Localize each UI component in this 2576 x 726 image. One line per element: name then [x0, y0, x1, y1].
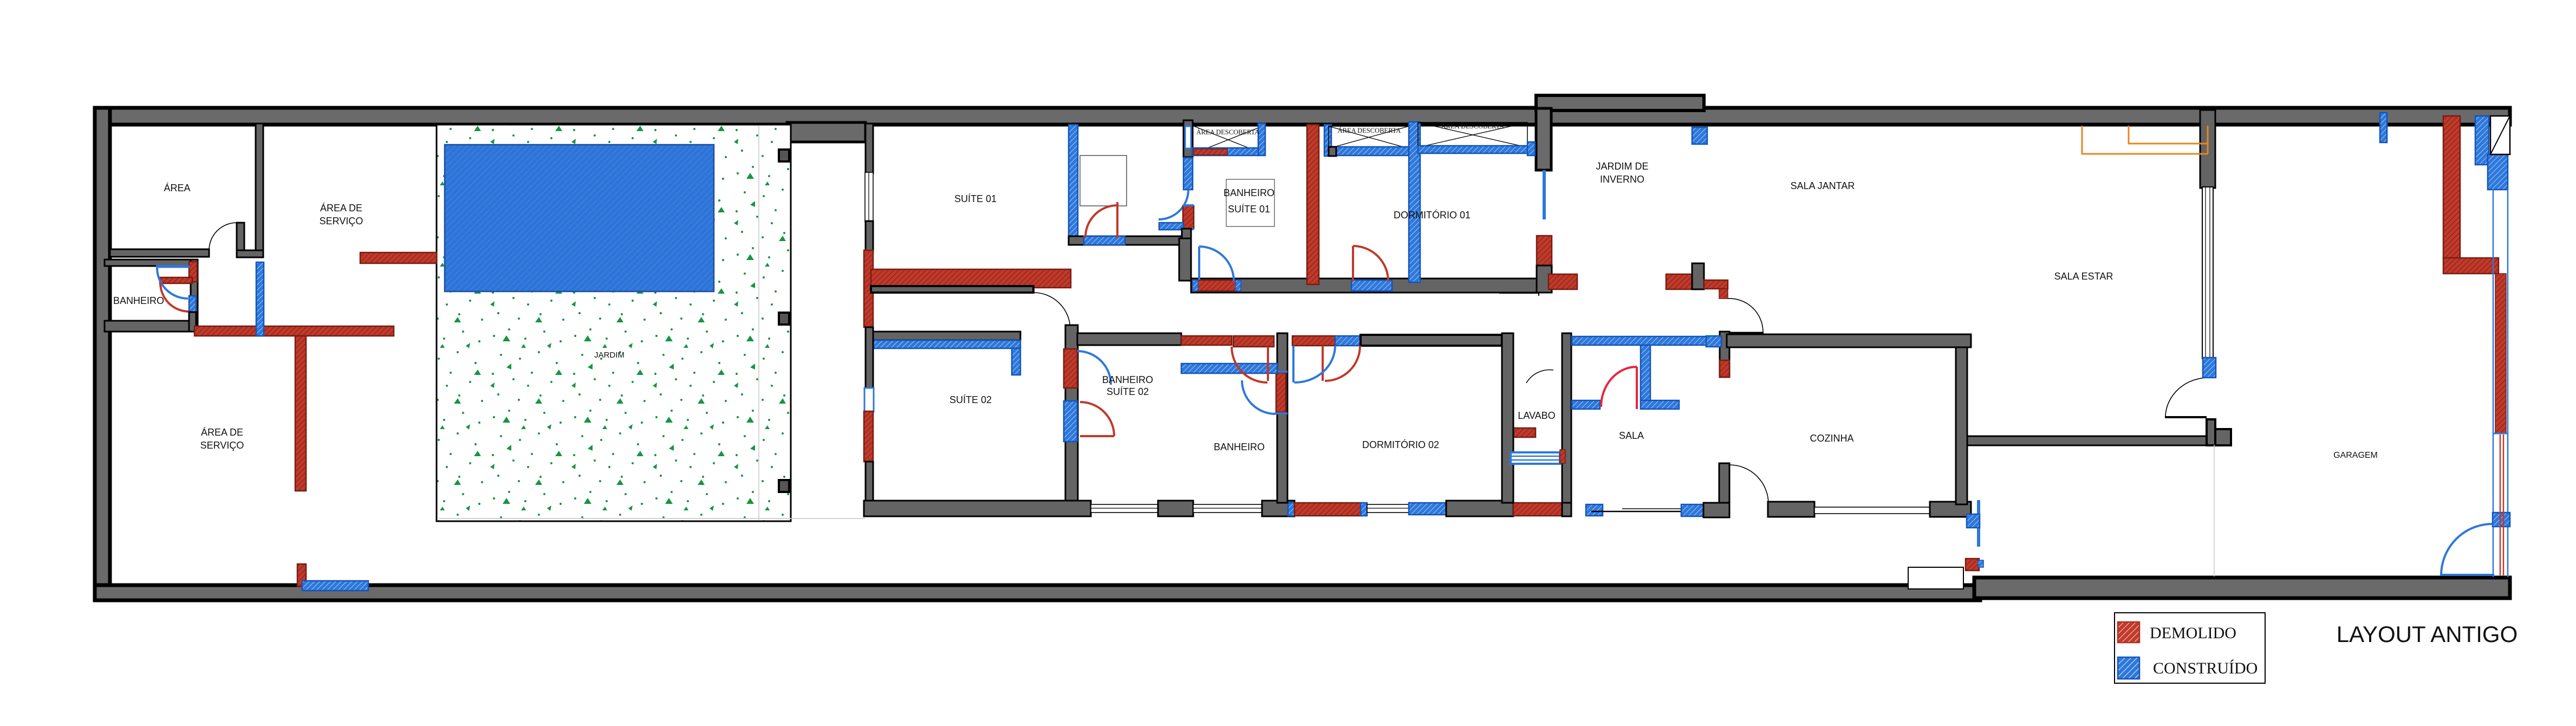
svg-text:SUÍTE 01: SUÍTE 01	[954, 193, 997, 204]
svg-text:JARDIM DE: JARDIM DE	[1596, 161, 1648, 172]
svg-text:SALA ESTAR: SALA ESTAR	[2054, 271, 2113, 282]
svg-text:SALA: SALA	[1619, 430, 1644, 441]
svg-text:ÁREA DESCOBERTA: ÁREA DESCOBERTA	[1196, 128, 1260, 136]
svg-text:SERVIÇO: SERVIÇO	[320, 216, 363, 226]
svg-text:CONSTRUÍDO: CONSTRUÍDO	[2153, 659, 2258, 677]
svg-text:ÁREA: ÁREA	[164, 183, 190, 193]
svg-text:SUÍTE 02: SUÍTE 02	[1107, 386, 1149, 397]
svg-text:ÁREA DE: ÁREA DE	[320, 203, 362, 213]
svg-text:BANHEIRO: BANHEIRO	[1102, 374, 1153, 385]
svg-text:JARDIM: JARDIM	[594, 351, 625, 360]
svg-text:BANHEIRO: BANHEIRO	[1224, 187, 1274, 198]
svg-text:ÁREA DESCOBERTA: ÁREA DESCOBERTA	[1441, 122, 1505, 130]
svg-text:LAYOUT ANTIGO: LAYOUT ANTIGO	[2337, 621, 2518, 647]
svg-text:GARAGEM: GARAGEM	[2333, 451, 2378, 460]
svg-text:DORMITÓRIO 01: DORMITÓRIO 01	[1394, 209, 1471, 221]
svg-text:COZINHA: COZINHA	[1810, 433, 1854, 444]
svg-text:ÁREA DESCOBERTA: ÁREA DESCOBERTA	[1338, 127, 1401, 134]
svg-text:ÁREA DE: ÁREA DE	[201, 427, 243, 438]
svg-text:BANHEIRO: BANHEIRO	[1214, 442, 1265, 452]
svg-text:SERVIÇO: SERVIÇO	[200, 440, 244, 451]
svg-text:SUÍTE 01: SUÍTE 01	[1228, 204, 1270, 215]
svg-text:BANHEIRO: BANHEIRO	[113, 295, 164, 306]
svg-text:DORMITÓRIO 02: DORMITÓRIO 02	[1362, 439, 1439, 450]
svg-text:LAVABO: LAVABO	[1518, 410, 1555, 421]
svg-text:INVERNO: INVERNO	[1600, 174, 1644, 185]
svg-text:SALA JANTAR: SALA JANTAR	[1791, 180, 1855, 191]
svg-text:DEMOLIDO: DEMOLIDO	[2150, 624, 2236, 642]
svg-text:SUÍTE 02: SUÍTE 02	[949, 394, 992, 405]
